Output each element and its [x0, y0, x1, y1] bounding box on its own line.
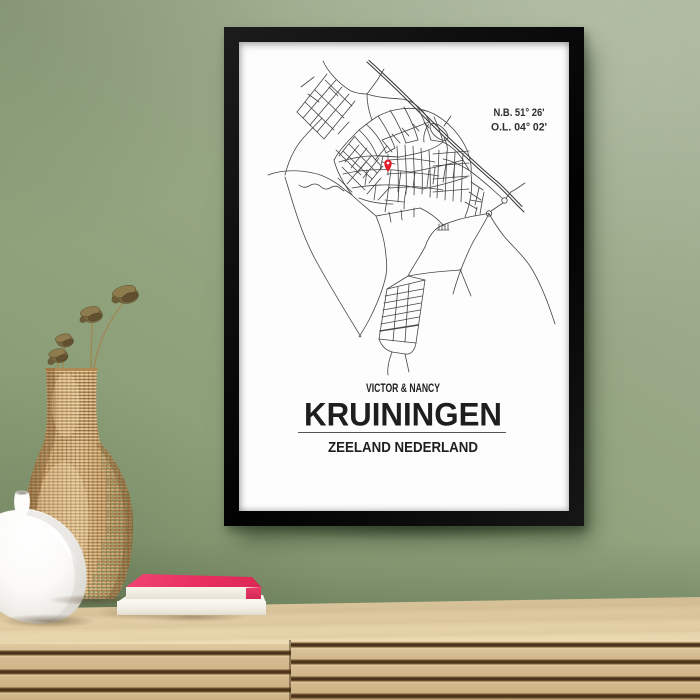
svg-text:VICTOR & NANCY: VICTOR & NANCY — [366, 383, 440, 395]
svg-text:O.L. 04° 02': O.L. 04° 02' — [491, 122, 547, 134]
svg-text:N.B. 51° 26': N.B. 51° 26' — [494, 107, 545, 119]
svg-text:KRUININGEN: KRUININGEN — [304, 397, 502, 433]
svg-text:ZEELAND NEDERLAND: ZEELAND NEDERLAND — [328, 439, 478, 456]
